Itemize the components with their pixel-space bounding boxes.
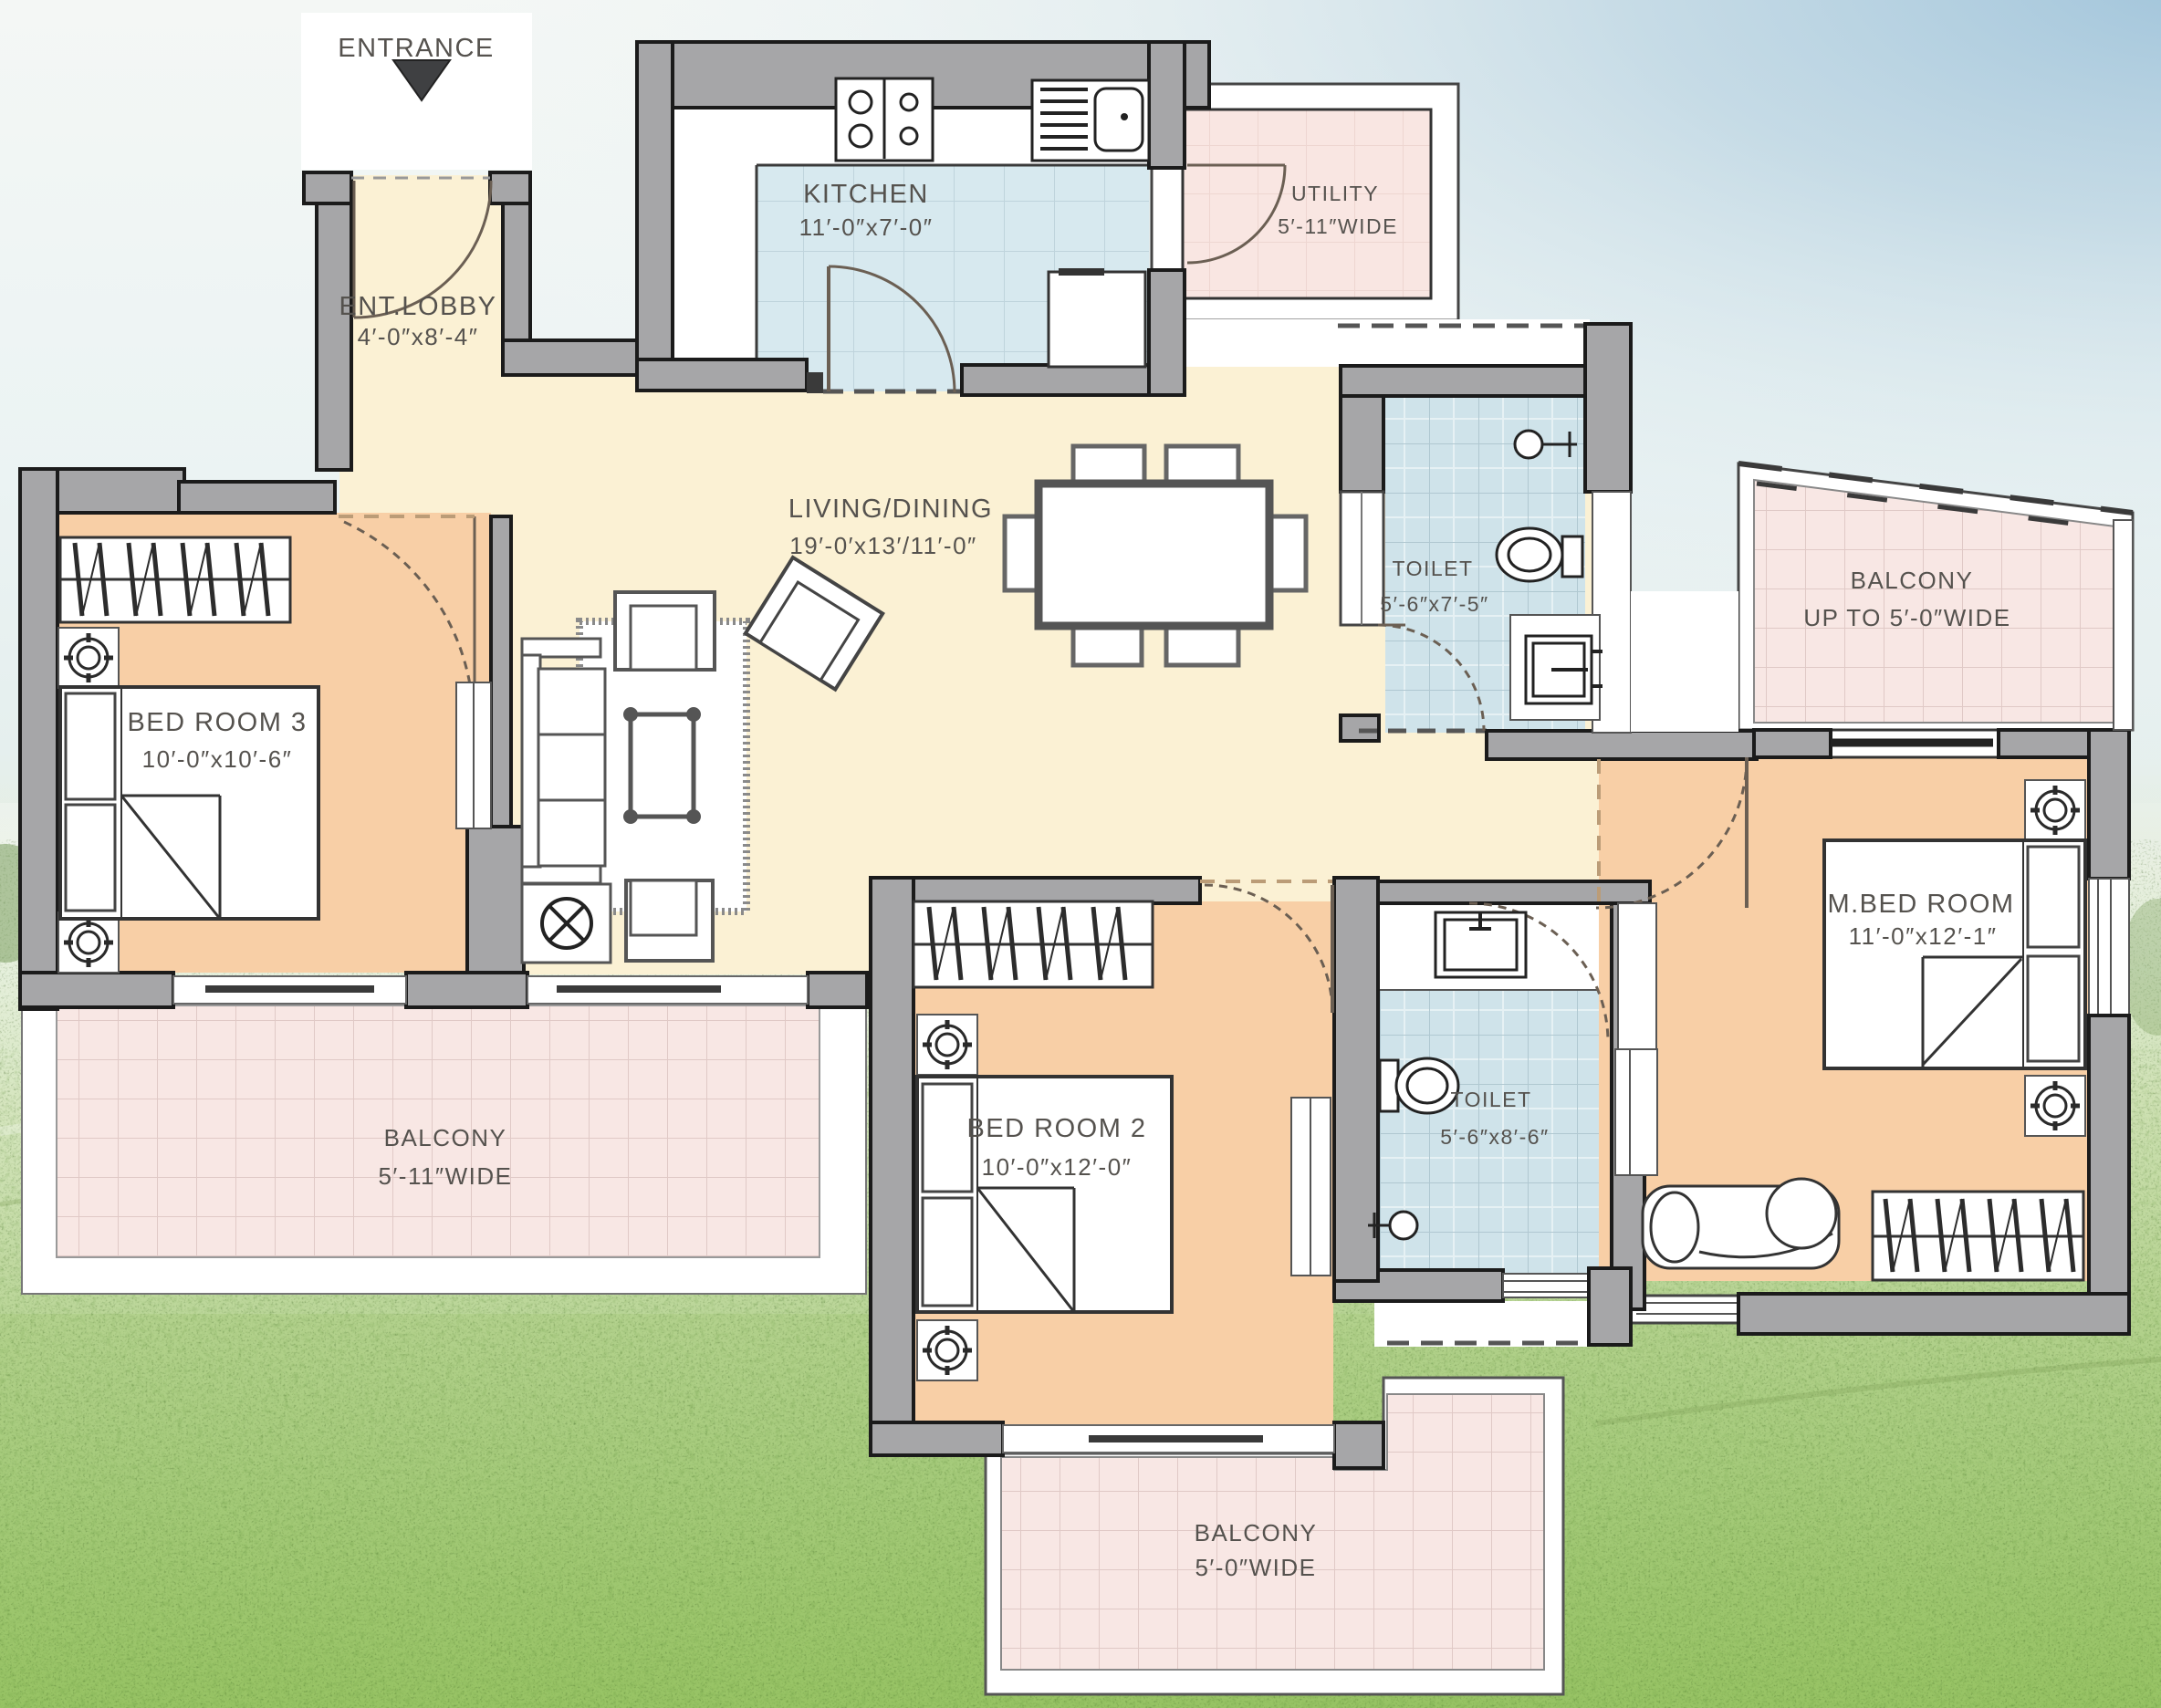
svg-text:4′-0″x8′-4″: 4′-0″x8′-4″ <box>358 323 479 350</box>
svg-text:19′-0′x13′/11′-0″: 19′-0′x13′/11′-0″ <box>789 532 977 559</box>
svg-text:5′-11″WIDE: 5′-11″WIDE <box>1278 214 1398 238</box>
svg-text:11′-0″x7′-0″: 11′-0″x7′-0″ <box>799 213 934 241</box>
svg-text:TOILET: TOILET <box>1392 557 1473 580</box>
svg-text:BALCONY: BALCONY <box>1851 567 1974 594</box>
svg-text:5′-11″WIDE: 5′-11″WIDE <box>378 1162 512 1190</box>
svg-text:10′-0″x12′-0″: 10′-0″x12′-0″ <box>982 1153 1133 1181</box>
svg-text:M.BED ROOM: M.BED ROOM <box>1827 890 2014 919</box>
svg-text:BED ROOM 3: BED ROOM 3 <box>127 708 307 737</box>
svg-text:UP TO 5′-0″WIDE: UP TO 5′-0″WIDE <box>1803 604 2010 631</box>
svg-text:BALCONY: BALCONY <box>384 1124 507 1151</box>
svg-text:5′-6″x7′-5″: 5′-6″x7′-5″ <box>1380 592 1488 616</box>
svg-text:BALCONY: BALCONY <box>1195 1519 1318 1547</box>
svg-text:BED ROOM 2: BED ROOM 2 <box>966 1114 1146 1143</box>
svg-text:5′-0″WIDE: 5′-0″WIDE <box>1195 1554 1316 1581</box>
svg-text:10′-0″x10′-6″: 10′-0″x10′-6″ <box>142 745 293 773</box>
svg-text:ENTRANCE: ENTRANCE <box>338 34 495 63</box>
svg-text:11′-0″x12′-1″: 11′-0″x12′-1″ <box>1849 922 1998 950</box>
svg-text:LIVING/DINING: LIVING/DINING <box>788 495 993 524</box>
svg-text:TOILET: TOILET <box>1450 1088 1531 1111</box>
svg-text:KITCHEN: KITCHEN <box>803 180 929 209</box>
svg-text:UTILITY: UTILITY <box>1291 182 1379 205</box>
svg-text:5′-6″x8′-6″: 5′-6″x8′-6″ <box>1440 1125 1549 1149</box>
svg-text:ENT.LOBBY: ENT.LOBBY <box>339 292 496 321</box>
